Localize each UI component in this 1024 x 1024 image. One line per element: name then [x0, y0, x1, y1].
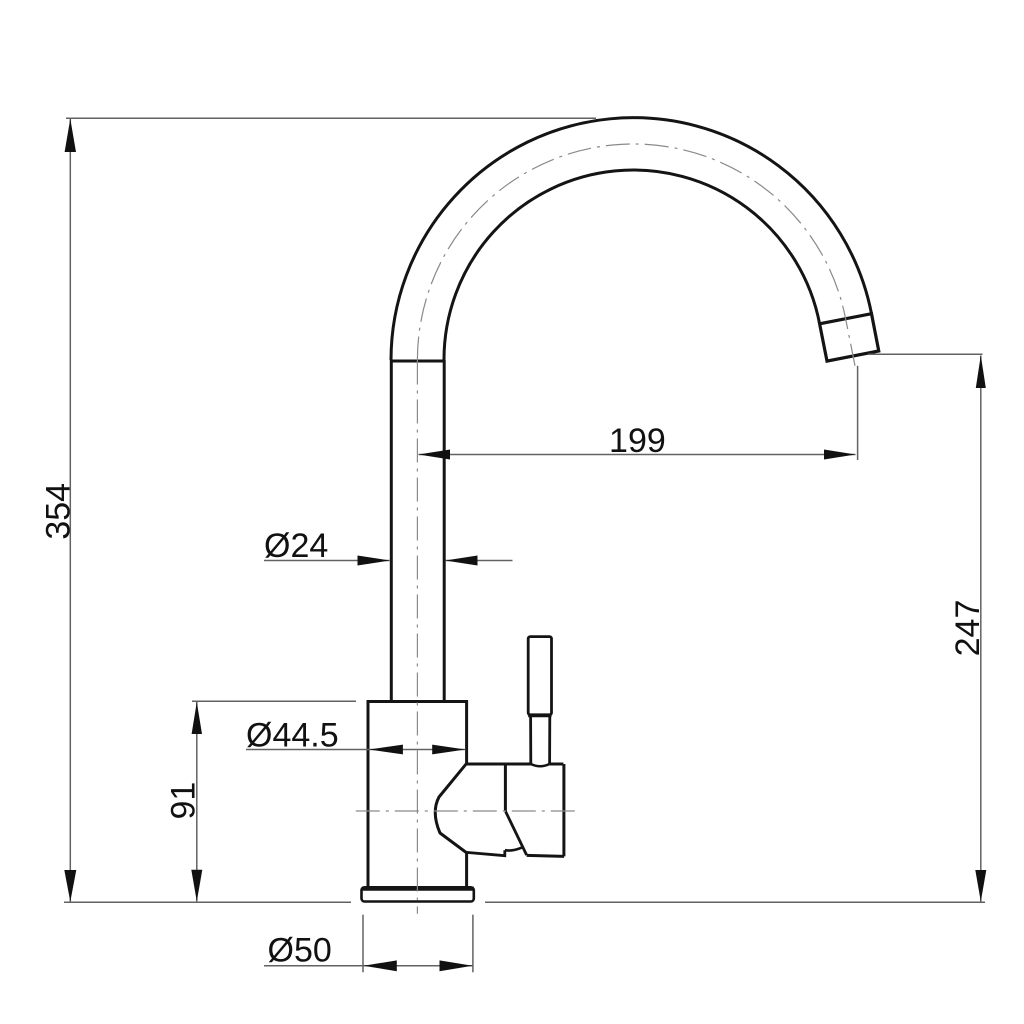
svg-text:247: 247 — [949, 600, 987, 657]
svg-text:Ø24: Ø24 — [264, 527, 328, 565]
svg-text:Ø44.5: Ø44.5 — [246, 717, 339, 755]
svg-text:199: 199 — [609, 422, 666, 460]
svg-text:91: 91 — [165, 782, 203, 820]
svg-text:354: 354 — [40, 483, 78, 540]
svg-text:Ø50: Ø50 — [268, 932, 332, 970]
